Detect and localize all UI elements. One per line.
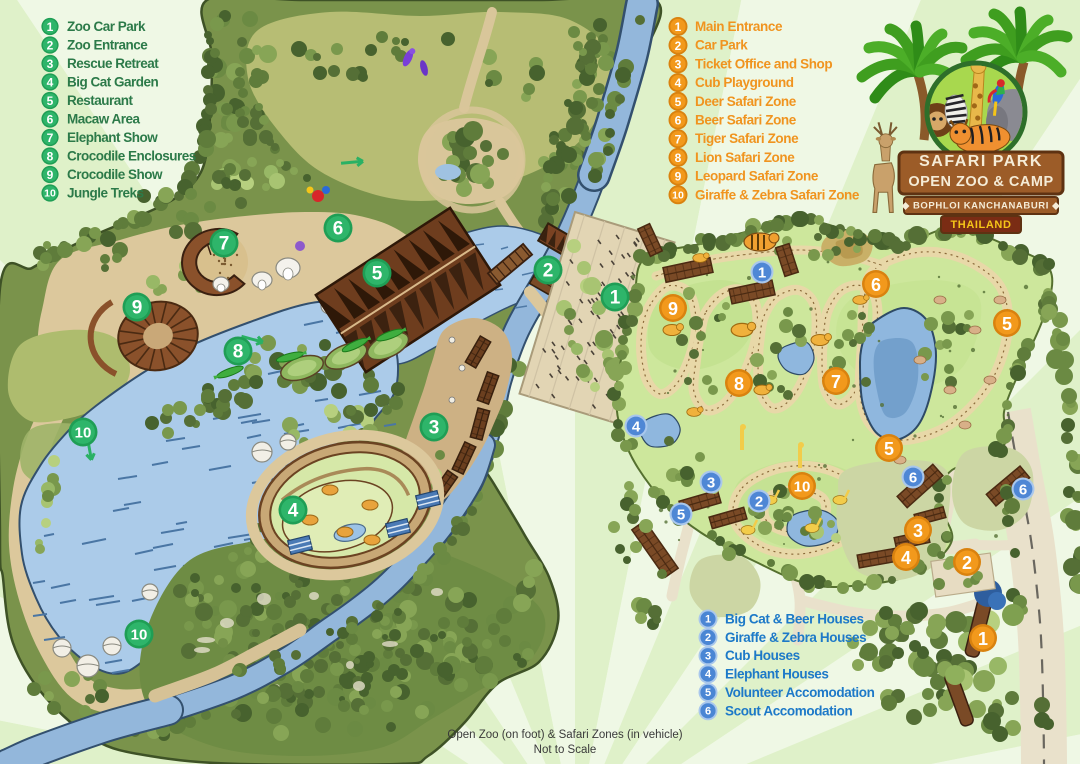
svg-text:9: 9 [668, 299, 678, 319]
svg-text:6: 6 [871, 275, 881, 295]
svg-text:1: 1 [705, 614, 711, 626]
svg-text:THAILAND: THAILAND [950, 219, 1011, 231]
svg-text:4: 4 [288, 501, 299, 522]
svg-text:Lion Safari Zone: Lion Safari Zone [695, 150, 795, 165]
svg-text:SAFARI PARK: SAFARI PARK [919, 153, 1043, 170]
svg-text:Restaurant: Restaurant [67, 93, 134, 108]
svg-text:1: 1 [610, 288, 621, 309]
svg-text:Deer Safari Zone: Deer Safari Zone [695, 94, 797, 109]
svg-text:Rescue Retreat: Rescue Retreat [67, 56, 159, 71]
svg-text:Zoo Entrance: Zoo Entrance [67, 38, 148, 53]
svg-text:2: 2 [47, 39, 54, 53]
svg-text:◆ BOPHLOI KANCHANABURI ◆: ◆ BOPHLOI KANCHANABURI ◆ [901, 201, 1060, 212]
svg-text:6: 6 [705, 705, 711, 717]
svg-text:7: 7 [675, 132, 682, 146]
svg-text:1: 1 [978, 629, 988, 649]
svg-text:5: 5 [705, 687, 711, 699]
svg-text:2: 2 [543, 261, 554, 282]
svg-text:2: 2 [675, 39, 682, 53]
svg-text:3: 3 [675, 58, 682, 72]
svg-text:8: 8 [233, 342, 244, 363]
svg-text:Elephant Show: Elephant Show [67, 130, 158, 145]
svg-text:Volunteer Accomodation: Volunteer Accomodation [725, 685, 875, 700]
svg-text:Car Park: Car Park [695, 38, 748, 53]
svg-text:Zoo Car Park: Zoo Car Park [67, 19, 146, 34]
svg-text:Macaw Area: Macaw Area [67, 112, 141, 127]
svg-text:Cub Houses: Cub Houses [725, 648, 800, 663]
svg-text:6: 6 [47, 113, 54, 127]
svg-text:5: 5 [884, 439, 894, 459]
svg-text:1: 1 [47, 20, 54, 34]
svg-text:8: 8 [675, 151, 682, 165]
svg-text:5: 5 [677, 507, 685, 524]
svg-text:Open Zoo (on foot) & Safari Zo: Open Zoo (on foot) & Safari Zones (in ve… [447, 729, 682, 741]
svg-text:3: 3 [705, 650, 711, 662]
svg-text:3: 3 [47, 57, 54, 71]
svg-text:10: 10 [44, 188, 56, 200]
svg-text:3: 3 [429, 418, 440, 439]
svg-text:Tiger Safari Zone: Tiger Safari Zone [695, 131, 799, 146]
svg-text:Ticket Office and Shop: Ticket Office and Shop [695, 56, 832, 71]
svg-text:6: 6 [909, 470, 917, 487]
svg-text:Elephant Houses: Elephant Houses [725, 667, 829, 682]
svg-text:3: 3 [913, 521, 923, 541]
svg-text:Leopard Safari Zone: Leopard Safari Zone [695, 169, 819, 184]
svg-text:5: 5 [675, 95, 682, 109]
svg-text:4: 4 [675, 76, 682, 90]
svg-text:4: 4 [901, 548, 911, 568]
svg-text:8: 8 [47, 150, 54, 164]
svg-text:4: 4 [632, 419, 641, 436]
svg-text:Jungle Treks: Jungle Treks [67, 186, 144, 201]
svg-text:Big Cat & Beer Houses: Big Cat & Beer Houses [725, 612, 864, 627]
svg-text:1: 1 [675, 20, 682, 34]
svg-text:2: 2 [962, 553, 972, 573]
svg-text:Giraffe & Zebra Safari Zone: Giraffe & Zebra Safari Zone [695, 187, 860, 202]
svg-text:2: 2 [755, 494, 763, 511]
svg-text:9: 9 [675, 170, 682, 184]
svg-text:Cub Playground: Cub Playground [695, 75, 794, 90]
svg-text:6: 6 [333, 219, 344, 240]
svg-text:OPEN ZOO & CAMP: OPEN ZOO & CAMP [908, 174, 1053, 190]
svg-text:6: 6 [1019, 482, 1027, 499]
svg-text:7: 7 [47, 131, 54, 145]
svg-text:10: 10 [75, 425, 92, 442]
svg-text:Big Cat Garden: Big Cat Garden [67, 75, 159, 90]
svg-text:5: 5 [372, 264, 383, 285]
svg-text:7: 7 [831, 372, 841, 392]
svg-text:10: 10 [131, 627, 148, 644]
svg-text:5: 5 [47, 94, 54, 108]
svg-text:7: 7 [219, 234, 230, 255]
svg-text:Scout Accomodation: Scout Accomodation [725, 703, 852, 718]
svg-text:9: 9 [47, 168, 54, 182]
svg-text:Giraffe & Zebra Houses: Giraffe & Zebra Houses [725, 630, 866, 645]
svg-text:6: 6 [675, 114, 682, 128]
svg-text:Beer Safari Zone: Beer Safari Zone [695, 113, 797, 128]
svg-text:8: 8 [734, 374, 744, 394]
svg-text:Main Entrance: Main Entrance [695, 19, 783, 34]
svg-text:10: 10 [794, 479, 811, 496]
svg-text:Not to Scale: Not to Scale [534, 744, 597, 756]
svg-text:1: 1 [758, 265, 766, 282]
svg-text:4: 4 [705, 669, 712, 681]
svg-text:4: 4 [47, 76, 54, 90]
svg-text:Crocodile Enclosures: Crocodile Enclosures [67, 149, 196, 164]
svg-text:10: 10 [672, 189, 684, 201]
svg-text:5: 5 [1002, 314, 1012, 334]
svg-text:3: 3 [707, 475, 715, 492]
svg-text:9: 9 [132, 298, 143, 319]
svg-text:Crocodile Show: Crocodile Show [67, 167, 163, 182]
svg-text:2: 2 [705, 632, 711, 644]
